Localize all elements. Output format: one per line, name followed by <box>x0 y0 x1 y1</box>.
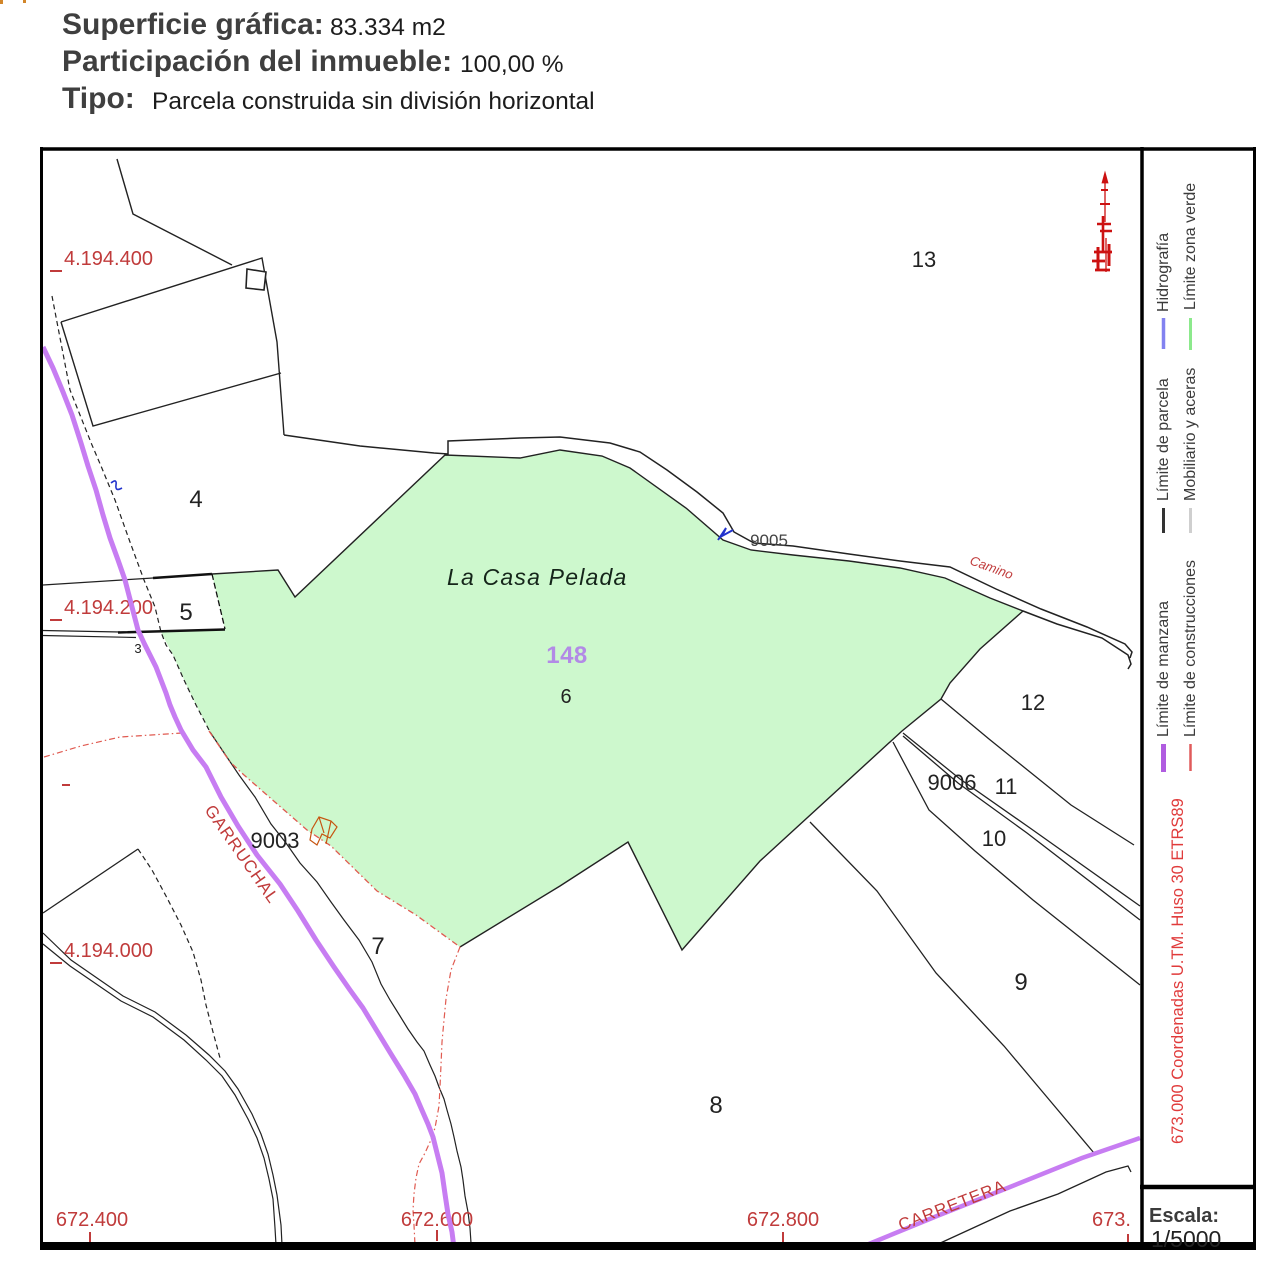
svg-text:CARRETERA: CARRETERA <box>896 1176 1009 1235</box>
svg-text:11: 11 <box>995 774 1018 799</box>
svg-text:672.800: 672.800 <box>747 1209 819 1231</box>
svg-text:4: 4 <box>189 486 202 513</box>
svg-text:4.194.400: 4.194.400 <box>64 248 153 270</box>
svg-text:10: 10 <box>982 826 1006 851</box>
svg-text:1/5000: 1/5000 <box>1151 1226 1221 1252</box>
svg-text:Camino: Camino <box>968 553 1015 582</box>
svg-text:4.194.000: 4.194.000 <box>64 940 153 962</box>
svg-text:4.194.200: 4.194.200 <box>64 597 153 619</box>
svg-text:7: 7 <box>371 933 384 960</box>
svg-text:Límite de parcela: Límite de parcela <box>1155 378 1172 501</box>
svg-text:Mobiliario y aceras: Mobiliario y aceras <box>1182 368 1199 501</box>
svg-text:13: 13 <box>912 247 936 272</box>
svg-text:5: 5 <box>179 599 192 626</box>
svg-text:673.000 Coordenadas U.TM. Huso: 673.000 Coordenadas U.TM. Huso 30 ETRS89 <box>1169 798 1187 1144</box>
svg-text:9: 9 <box>1014 969 1027 996</box>
svg-text:6: 6 <box>560 686 571 708</box>
svg-text:Límite de construcciones: Límite de construcciones <box>1182 560 1199 737</box>
svg-text:12: 12 <box>1021 690 1045 715</box>
svg-text:Límite de manzana: Límite de manzana <box>1155 601 1172 737</box>
svg-text:8: 8 <box>709 1092 722 1119</box>
svg-text:148: 148 <box>546 642 588 669</box>
svg-text:672.600: 672.600 <box>401 1209 473 1231</box>
svg-text:La Casa Pelada: La Casa Pelada <box>447 564 627 590</box>
svg-text:672.400: 672.400 <box>56 1209 128 1231</box>
svg-text:9005: 9005 <box>750 531 788 550</box>
svg-text:GARRUCHAL: GARRUCHAL <box>201 801 283 907</box>
svg-text:9003: 9003 <box>251 828 300 853</box>
svg-text:Hidrografía: Hidrografía <box>1155 233 1172 312</box>
svg-text:Límite zona verde: Límite zona verde <box>1182 183 1199 310</box>
svg-text:673.: 673. <box>1092 1209 1131 1231</box>
svg-text:9006: 9006 <box>928 770 977 795</box>
svg-text:Escala:: Escala: <box>1149 1205 1219 1227</box>
svg-text:3: 3 <box>134 641 141 656</box>
